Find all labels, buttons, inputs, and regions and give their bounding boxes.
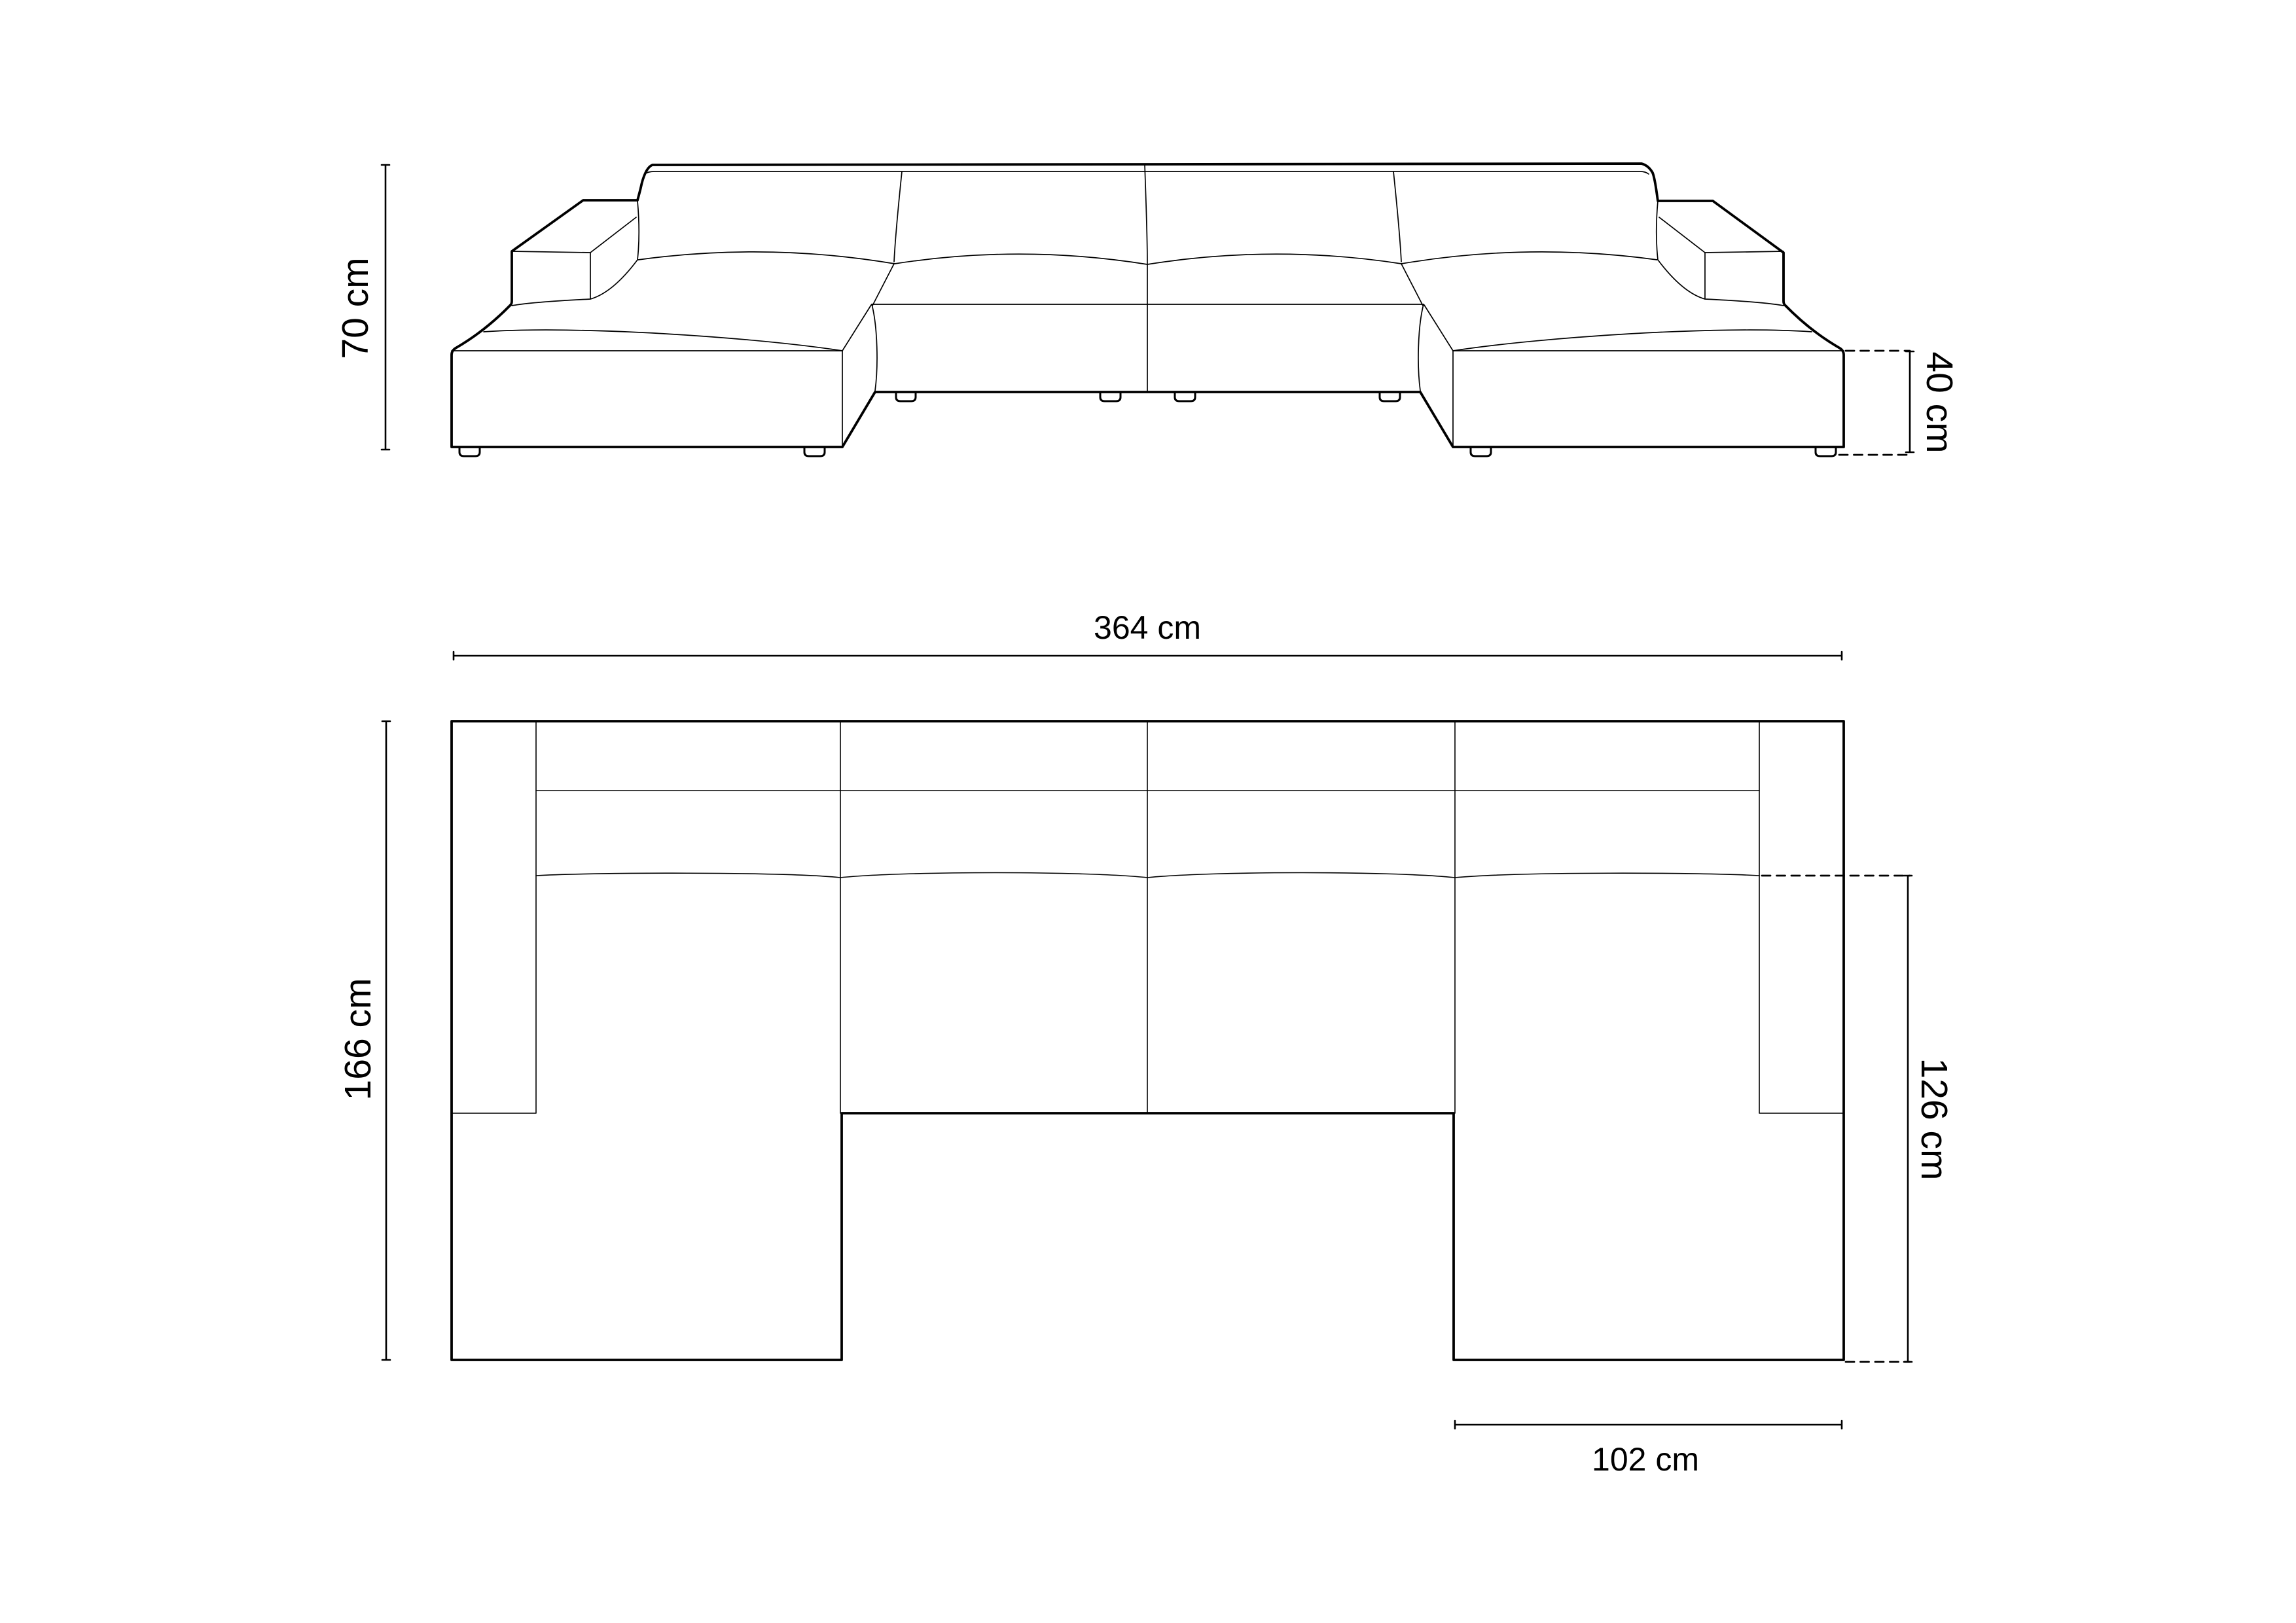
svg-text:364 cm: 364 cm (1094, 609, 1201, 646)
svg-text:40 cm: 40 cm (1918, 351, 1960, 453)
svg-text:166 cm: 166 cm (337, 978, 379, 1101)
svg-text:102 cm: 102 cm (1592, 1441, 1699, 1478)
svg-text:70 cm: 70 cm (334, 257, 376, 359)
svg-text:126 cm: 126 cm (1913, 1058, 1955, 1181)
